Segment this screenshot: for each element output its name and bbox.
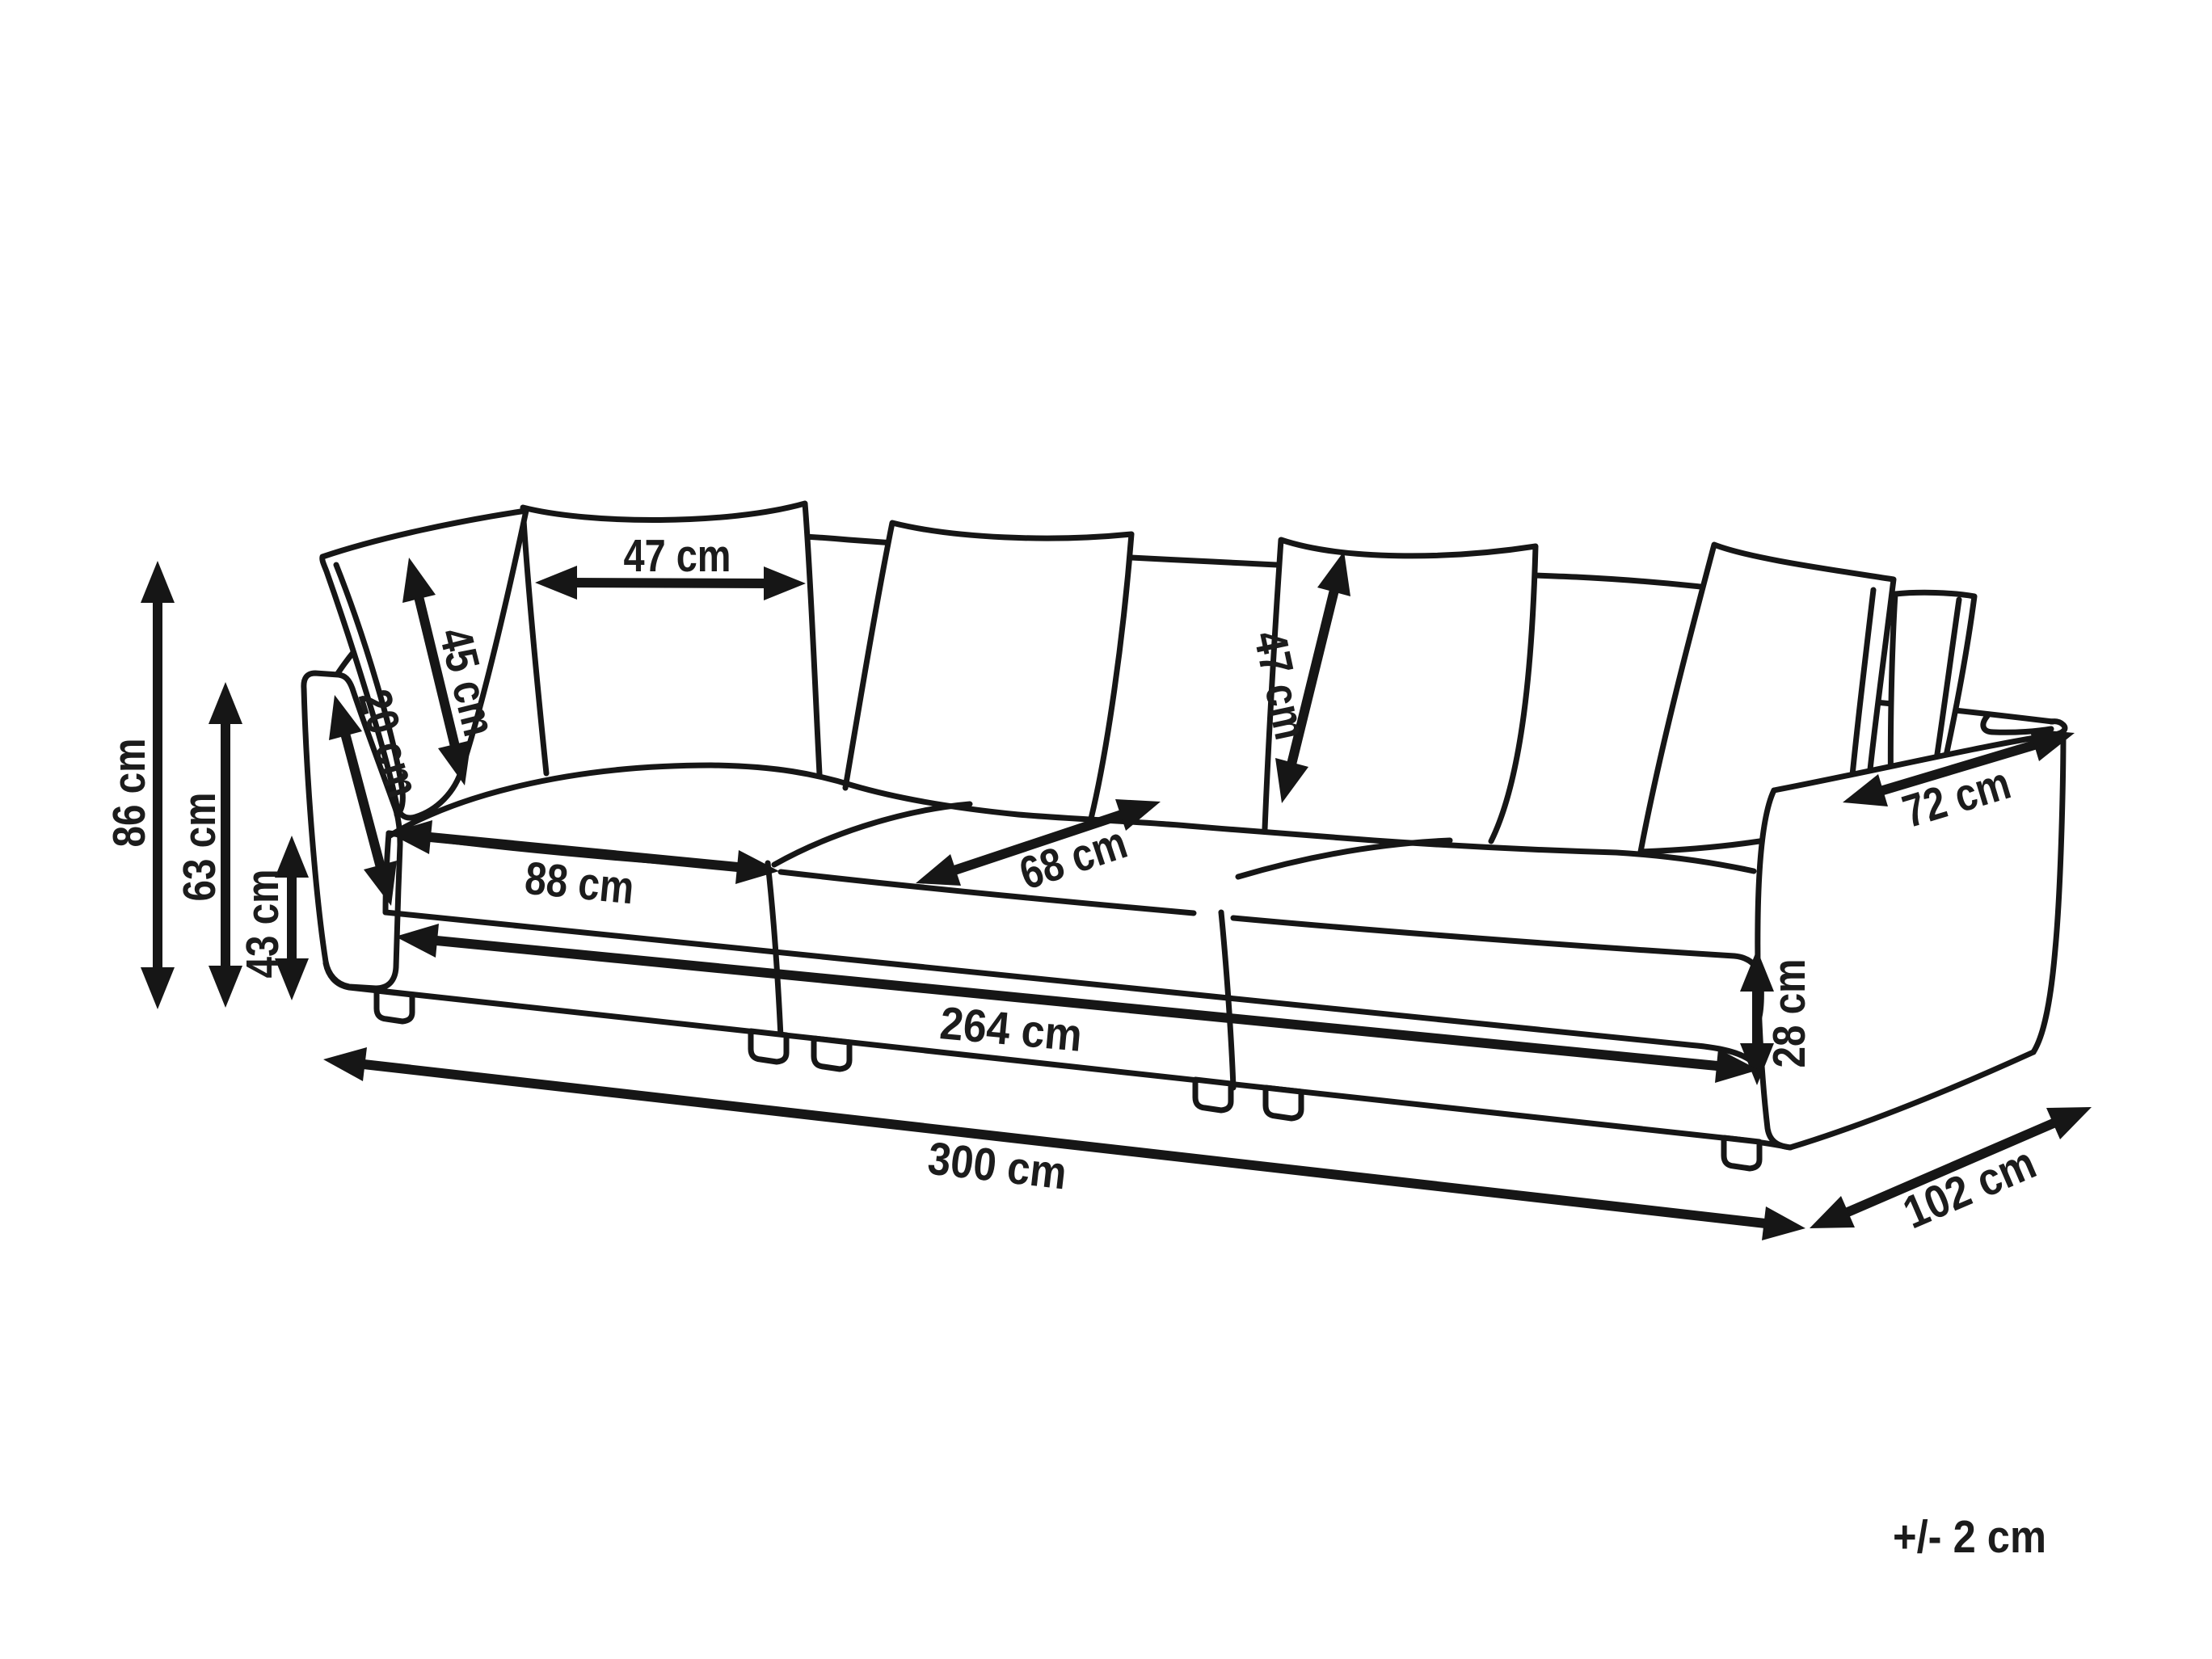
svg-text:28 cm: 28 cm bbox=[1763, 959, 1815, 1068]
svg-text:43 cm: 43 cm bbox=[237, 870, 289, 979]
svg-text:47 cm: 47 cm bbox=[624, 530, 731, 582]
svg-text:86 cm: 86 cm bbox=[103, 739, 155, 848]
svg-text:88 cm: 88 cm bbox=[523, 853, 637, 915]
svg-text:63 cm: 63 cm bbox=[174, 793, 225, 902]
svg-text:+/- 2 cm: +/- 2 cm bbox=[1893, 1511, 2046, 1563]
